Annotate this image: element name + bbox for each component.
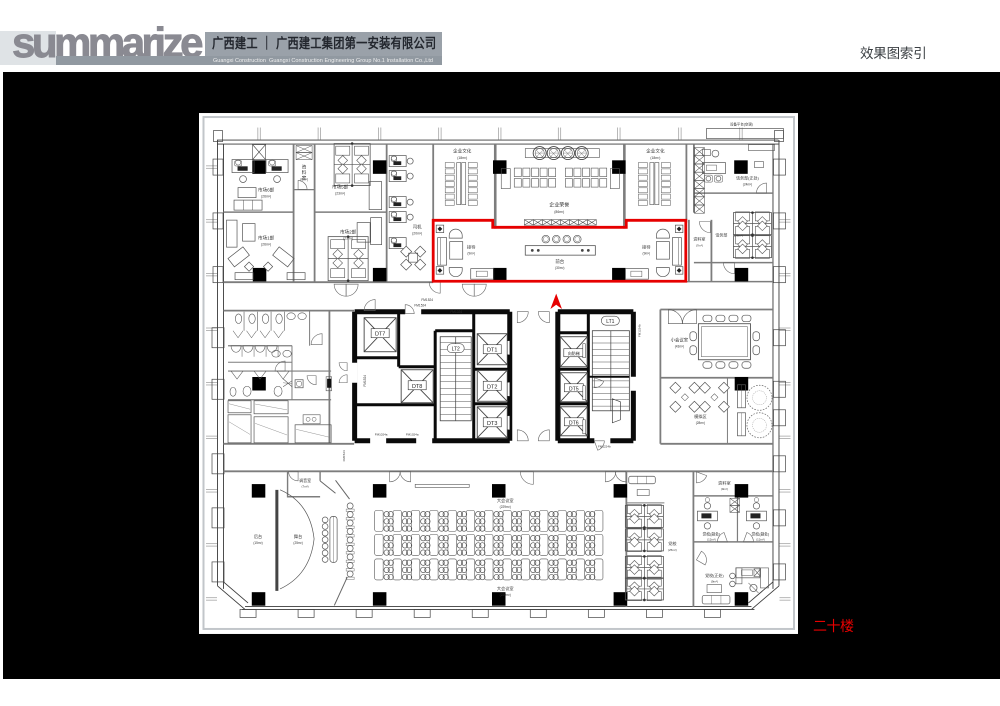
- svg-text:资料室: 资料室: [718, 479, 731, 486]
- svg-text:司机: 司机: [413, 223, 422, 230]
- svg-text:(18m²): (18m²): [650, 156, 660, 160]
- svg-text:(12m²): (12m²): [707, 537, 716, 541]
- svg-text:企业文化: 企业文化: [453, 147, 472, 154]
- svg-text:(26m²): (26m²): [261, 194, 271, 198]
- svg-text:市场2部: 市场2部: [340, 228, 357, 235]
- svg-text:向防梯: 向防梯: [568, 350, 580, 356]
- svg-text:设备平台(空调): 设备平台(空调): [730, 121, 753, 126]
- svg-text:(86m²): (86m²): [554, 210, 564, 214]
- svg-text:(26m²): (26m²): [734, 233, 743, 237]
- svg-text:话务部(正处): 话务部(正处): [736, 174, 759, 180]
- svg-text:前台: 前台: [555, 258, 564, 265]
- svg-text:(26m²): (26m²): [261, 242, 271, 246]
- svg-text:DT6: DT6: [569, 420, 579, 426]
- svg-text:(28m²): (28m²): [696, 420, 705, 424]
- svg-text:话务部: 话务部: [715, 231, 727, 237]
- svg-text:党校: 党校: [668, 539, 677, 546]
- svg-text:(25m²): (25m²): [668, 547, 677, 551]
- svg-text:FM1224b: FM1224b: [637, 324, 641, 337]
- svg-text:大会议室: 大会议室: [497, 496, 514, 503]
- svg-text:党校(正处): 党校(正处): [705, 571, 724, 577]
- svg-text:FM1524: FM1524: [342, 449, 346, 460]
- svg-text:DT2: DT2: [487, 384, 497, 390]
- svg-text:(30m²): (30m²): [555, 266, 564, 270]
- svg-text:FM1524: FM1524: [421, 298, 433, 302]
- svg-text:大会议室: 大会议室: [497, 584, 514, 591]
- svg-text:党校(副处): 党校(副处): [752, 531, 770, 536]
- svg-text:(9m²): (9m²): [721, 486, 728, 490]
- svg-text:(23m²): (23m²): [343, 236, 353, 240]
- svg-text:LT1: LT1: [606, 319, 614, 325]
- svg-text:DT5: DT5: [569, 386, 579, 392]
- svg-text:(229m²): (229m²): [500, 504, 511, 508]
- svg-text:(15m²): (15m²): [253, 540, 262, 544]
- svg-text:模拟区: 模拟区: [694, 412, 707, 419]
- svg-text:DT7: DT7: [375, 331, 385, 337]
- svg-text:(43m²): (43m²): [675, 344, 684, 348]
- svg-text:党校(副处): 党校(副处): [703, 531, 721, 536]
- svg-text:资料室: 资料室: [693, 235, 705, 241]
- svg-text:(7m²): (7m²): [302, 484, 309, 488]
- svg-text:(9m²): (9m²): [467, 251, 475, 255]
- svg-text:(23m²): (23m²): [335, 191, 345, 195]
- svg-text:DT3: DT3: [487, 420, 497, 426]
- svg-text:(24m²): (24m²): [743, 182, 752, 186]
- svg-text:接待: 接待: [467, 243, 476, 250]
- svg-text:接待: 接待: [642, 243, 651, 250]
- svg-text:后台: 后台: [254, 532, 262, 539]
- svg-text:企业文化: 企业文化: [646, 147, 665, 154]
- svg-text:DT1: DT1: [487, 347, 497, 353]
- svg-text:FM1024: FM1024: [450, 310, 462, 314]
- svg-text:FM1224b: FM1224b: [598, 444, 611, 448]
- svg-text:(9m²): (9m²): [711, 579, 718, 583]
- svg-text:(18m²): (18m²): [457, 156, 467, 160]
- svg-text:FM1024a: FM1024a: [406, 432, 419, 436]
- svg-text:(7m²): (7m²): [696, 243, 703, 247]
- svg-text:(9m²): (9m²): [643, 251, 651, 255]
- svg-text:企业荣誉: 企业荣誉: [549, 201, 569, 208]
- svg-text:(20m²): (20m²): [412, 231, 422, 235]
- svg-text:(229m²): (229m²): [500, 592, 511, 596]
- svg-text:(12m²): (12m²): [756, 537, 765, 541]
- svg-text:市场1部: 市场1部: [258, 234, 275, 241]
- svg-text:DT8: DT8: [412, 383, 422, 389]
- svg-text:舞台: 舞台: [294, 532, 302, 539]
- svg-text:市场6部: 市场6部: [258, 186, 275, 193]
- svg-text:市场5部: 市场5部: [332, 183, 349, 190]
- svg-text:FM1524: FM1524: [363, 374, 367, 386]
- svg-text:FM1524: FM1524: [414, 303, 426, 307]
- svg-text:小会议室: 小会议室: [671, 336, 689, 343]
- svg-text:FM1024a: FM1024a: [375, 432, 388, 436]
- svg-text:(25m²): (25m²): [293, 540, 302, 544]
- svg-text:调音室: 调音室: [299, 476, 311, 482]
- svg-text:LT2: LT2: [452, 346, 460, 352]
